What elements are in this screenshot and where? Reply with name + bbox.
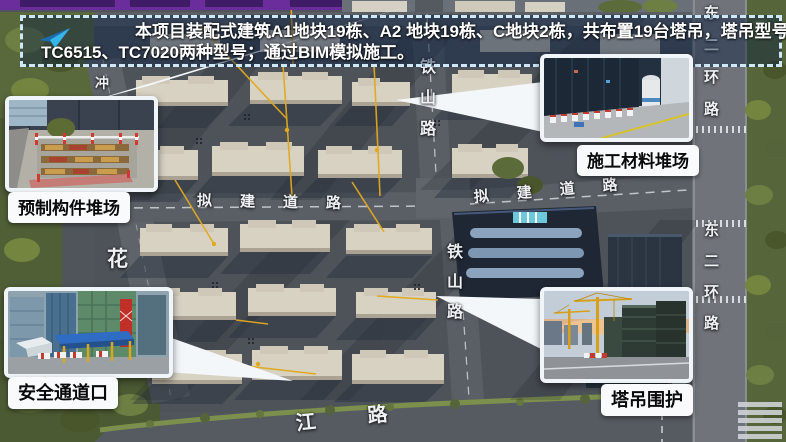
safety-passage-photo — [4, 287, 173, 378]
banner-text-line1: 本项目装配式建筑A1地块19栋、A2 地块19栋、C地块2栋，共布置19台塔吊，… — [135, 21, 786, 42]
precast-yard-photo — [5, 96, 158, 192]
road-label-hua: 花 — [107, 249, 128, 270]
top-bar-segment — [130, 0, 190, 7]
top-bar-segment — [205, 0, 263, 7]
precast-yard-label: 预制构件堆场 — [8, 192, 130, 223]
material-yard-label: 施工材料堆场 — [577, 145, 699, 176]
road-label-east-ring-lower: 东二环路 — [703, 222, 718, 346]
crane-enclosure-photo — [540, 287, 693, 383]
road-label-proposed-west: 拟建道路 — [197, 194, 369, 212]
bim-site-overview-slide: 铁山路 铁山路 东二环路 东二环路 拟建道路 拟建道路 花 冲 江路 本项目装配… — [0, 0, 786, 442]
material-yard-photo — [540, 54, 693, 142]
safety-passage-label: 安全通道口 — [8, 377, 118, 409]
road-label-chong: 冲 — [95, 76, 109, 90]
road-label-tieshan-upper: 铁山路 — [417, 58, 433, 151]
crane-enclosure-label: 塔吊围护 — [601, 384, 693, 416]
cyan-kiosk — [513, 212, 547, 223]
road-label-tieshan-lower: 铁山路 — [444, 243, 460, 333]
slide-top-bar — [0, 0, 342, 10]
top-bar-segment — [290, 0, 342, 7]
top-bar-segment — [20, 0, 115, 7]
banner-text-line2: TC6515、TC7020两种型号；通过BIM模拟施工。 — [41, 42, 414, 63]
